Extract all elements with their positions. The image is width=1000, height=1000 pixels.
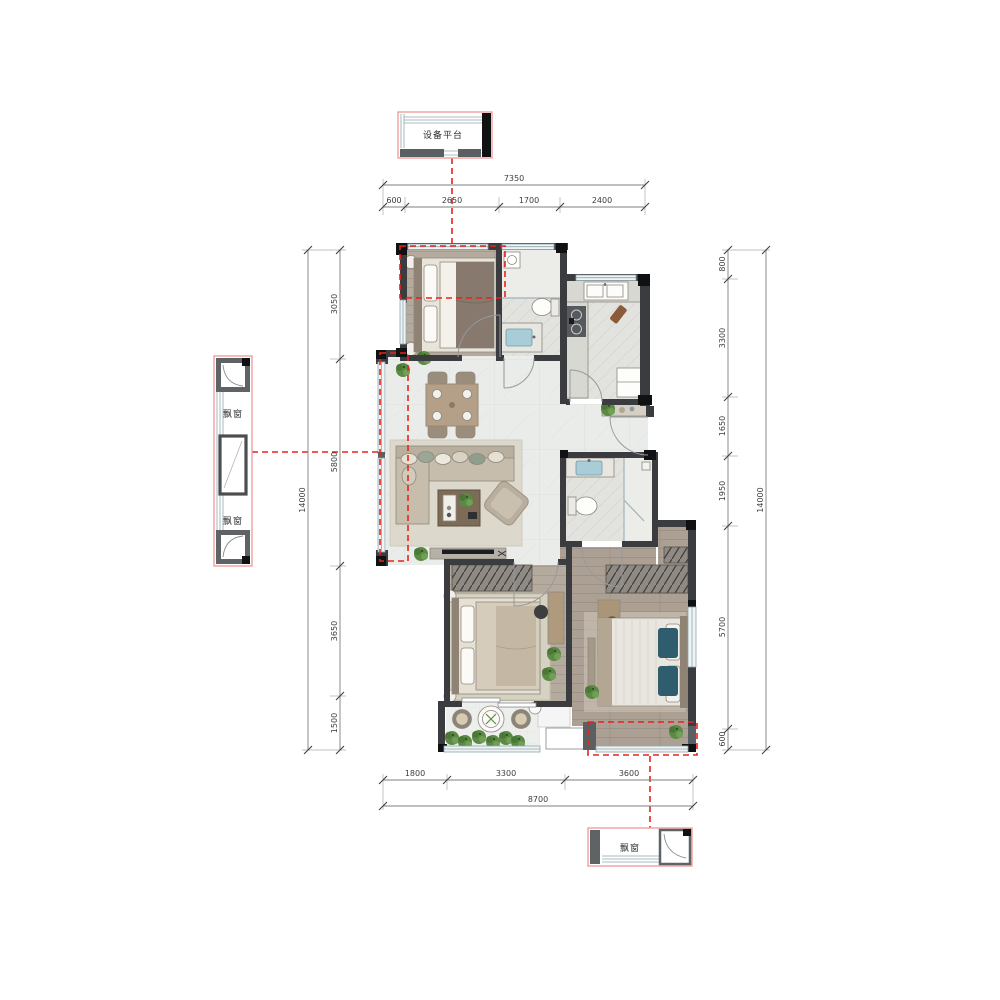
wardrobe xyxy=(606,565,688,593)
dim-right-seg: 600 xyxy=(718,731,727,746)
shower-floor xyxy=(624,458,652,541)
bedroom-1-west-window xyxy=(400,300,406,344)
floor-plan-drawing: 设备平台 飘窗 飘窗 飘窗 7350 60 xyxy=(0,0,1000,1000)
dim-right-seg: 5700 xyxy=(718,617,727,637)
left-bay-bottom-label: 飘窗 xyxy=(223,515,243,527)
tv xyxy=(442,550,494,555)
dimensions-right: 800 3300 1650 1950 5700 600 14000 xyxy=(718,246,770,754)
master-bay-south-window xyxy=(596,746,688,752)
ac-platform xyxy=(546,728,586,749)
dim-top-seg: 2400 xyxy=(592,196,612,205)
bench xyxy=(588,638,595,688)
shower-head xyxy=(642,462,650,470)
equipment-platform-label: 设备平台 xyxy=(423,129,463,141)
desk xyxy=(548,592,564,644)
left-bay-top-label: 飘窗 xyxy=(223,408,243,420)
bathroom-1-north-window xyxy=(502,244,554,250)
dim-right-total: 14000 xyxy=(756,487,765,512)
dim-bottom-total: 8700 xyxy=(528,795,548,804)
dim-bottom-seg: 3600 xyxy=(619,769,639,778)
plant xyxy=(459,493,473,507)
washer xyxy=(504,252,520,268)
sink xyxy=(506,329,532,346)
dim-top-total: 7350 xyxy=(504,174,524,183)
dim-top-seg: 1700 xyxy=(519,196,539,205)
pillow xyxy=(658,628,678,658)
plant xyxy=(669,725,683,739)
fridge xyxy=(617,368,644,397)
floor-plan-page: 设备平台 飘窗 飘窗 飘窗 7350 60 xyxy=(0,0,1000,1000)
master-east-window xyxy=(688,607,696,667)
dim-right-seg: 3300 xyxy=(718,328,727,348)
toilet xyxy=(532,299,552,316)
living-set xyxy=(390,440,531,561)
plant xyxy=(414,547,428,561)
toilet xyxy=(575,497,597,515)
balcony-south-window xyxy=(444,746,540,752)
desk-chair xyxy=(534,605,548,619)
dim-bottom-seg: 3300 xyxy=(496,769,516,778)
master-entry-floor xyxy=(560,547,656,565)
living-west-bay-window xyxy=(378,362,385,552)
left-bay-window-detail: 飘窗 飘窗 xyxy=(214,356,252,566)
wardrobe xyxy=(664,547,688,563)
dim-left-seg: 3650 xyxy=(330,621,339,641)
sink xyxy=(576,461,602,475)
dim-right-seg: 800 xyxy=(718,256,727,271)
dimensions-top: 7350 600 2650 1700 2400 xyxy=(379,174,649,215)
dimensions-left: 14000 3050 5800 3650 1500 xyxy=(298,246,346,754)
dim-bottom-seg: 1800 xyxy=(405,769,425,778)
bottom-bay-label: 飘窗 xyxy=(620,842,640,854)
dim-right-seg: 1950 xyxy=(718,481,727,501)
dim-left-seg: 1500 xyxy=(330,713,339,733)
plant xyxy=(547,647,561,661)
dim-left-total: 14000 xyxy=(298,487,307,512)
kitchen-north-window xyxy=(576,275,636,281)
dim-left-seg: 5800 xyxy=(330,452,339,472)
wardrobe xyxy=(452,565,532,591)
equipment-platform-detail: 设备平台 xyxy=(398,112,492,158)
pillow xyxy=(658,666,678,696)
plant xyxy=(542,667,556,681)
dim-left-seg: 3050 xyxy=(330,294,339,314)
dim-top-seg: 600 xyxy=(386,196,401,205)
dim-top-seg: 2650 xyxy=(442,196,462,205)
plant xyxy=(585,685,599,699)
bottom-bay-window-detail: 飘窗 xyxy=(588,828,692,866)
dim-right-seg: 1650 xyxy=(718,416,727,436)
bedroom-1-bed xyxy=(405,256,497,356)
